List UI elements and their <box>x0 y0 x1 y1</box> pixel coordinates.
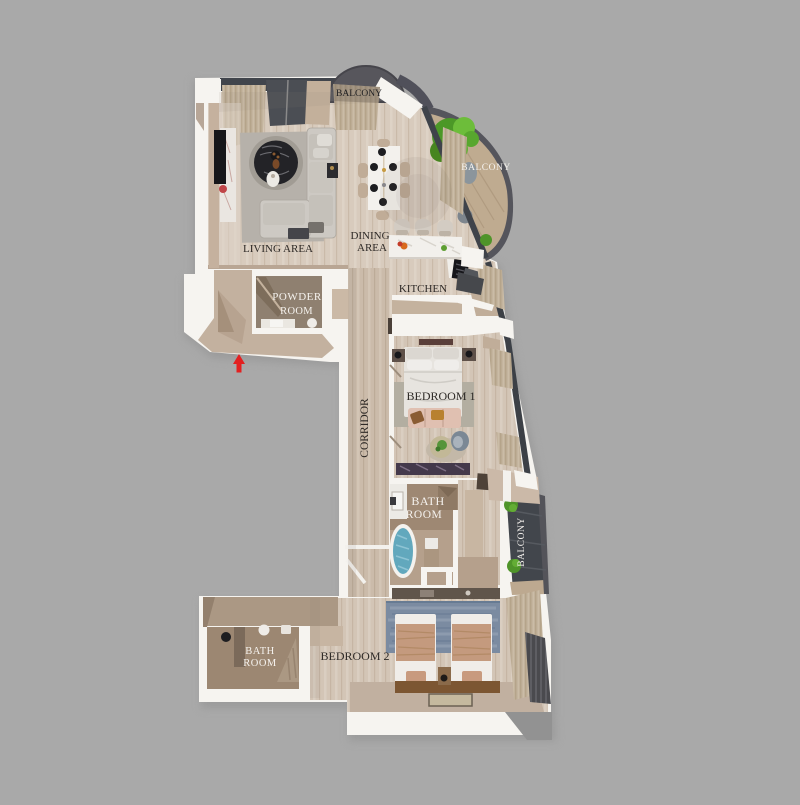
svg-text:BATH: BATH <box>411 494 444 508</box>
svg-text:LIVING AREA: LIVING AREA <box>243 243 313 255</box>
svg-text:DINING: DINING <box>350 230 389 242</box>
svg-text:BATH: BATH <box>245 646 274 657</box>
svg-text:ROOM: ROOM <box>280 306 313 317</box>
svg-text:BALCONY: BALCONY <box>336 89 382 99</box>
svg-text:CORRIDOR: CORRIDOR <box>359 398 371 458</box>
svg-text:POWDER: POWDER <box>272 291 322 303</box>
svg-text:ROOM: ROOM <box>243 658 277 669</box>
svg-text:BEDROOM 2: BEDROOM 2 <box>320 649 389 663</box>
svg-text:BEDROOM 1: BEDROOM 1 <box>406 389 475 403</box>
svg-text:ROOM: ROOM <box>406 509 443 521</box>
svg-text:BALCONY: BALCONY <box>461 163 510 173</box>
svg-text:AREA: AREA <box>357 242 387 254</box>
svg-text:KITCHEN: KITCHEN <box>399 283 447 295</box>
svg-text:BALCONY: BALCONY <box>517 517 527 566</box>
